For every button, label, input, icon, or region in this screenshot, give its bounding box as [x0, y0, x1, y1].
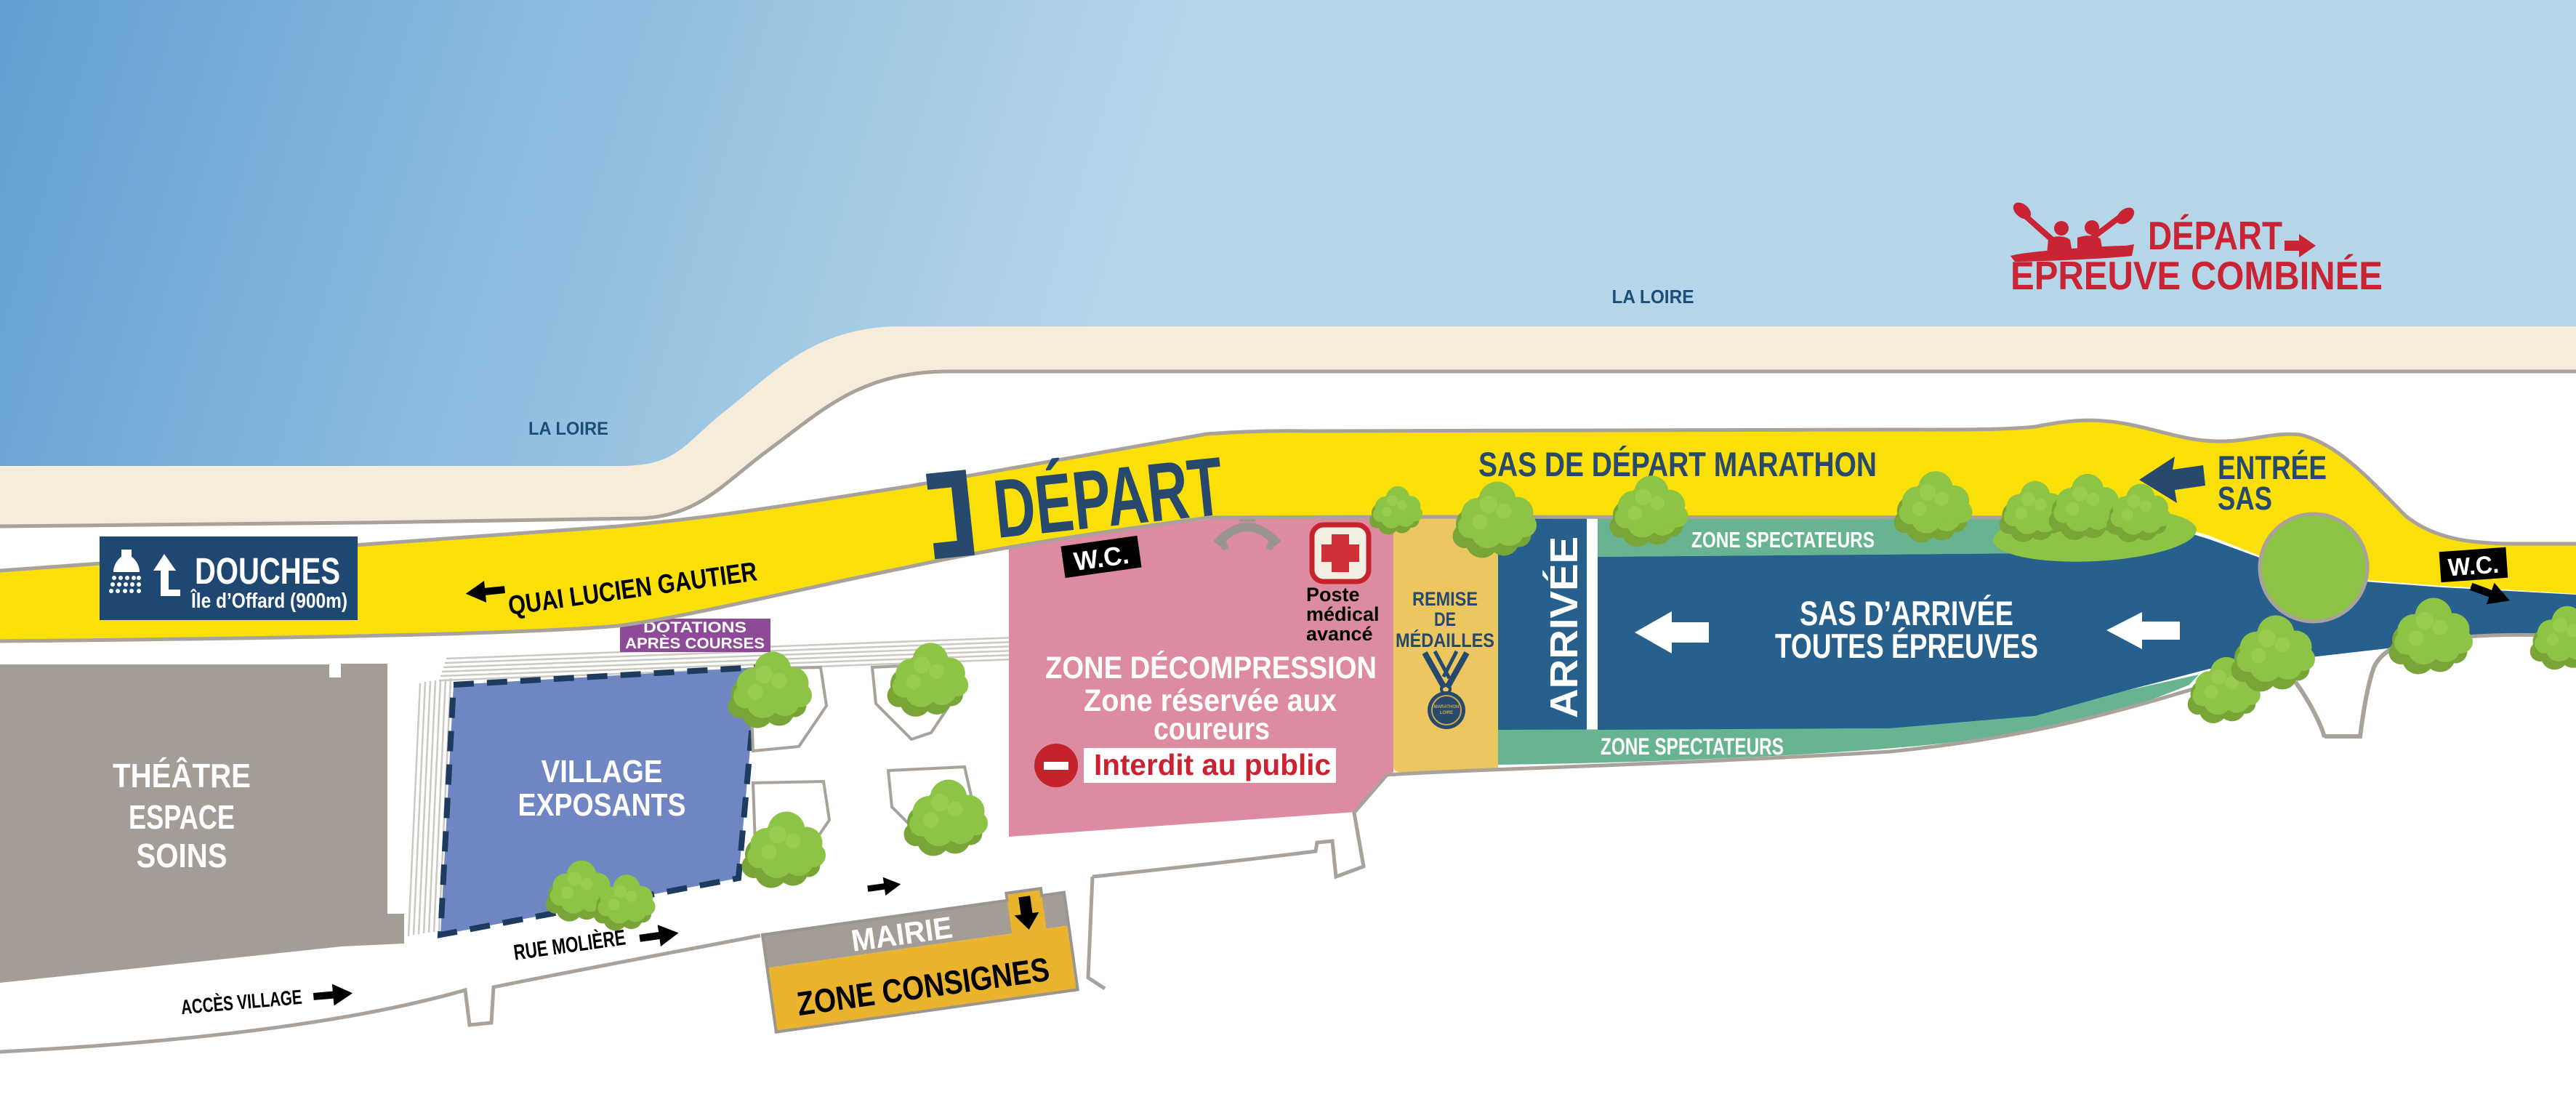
svg-text:Interdit au public: Interdit au public: [1094, 748, 1331, 781]
svg-text:MÉDAILLES: MÉDAILLES: [1396, 629, 1494, 651]
svg-text:VILLAGE: VILLAGE: [542, 754, 663, 789]
svg-text:APRÈS COURSES: APRÈS COURSES: [625, 635, 765, 652]
svg-text:médical: médical: [1306, 603, 1380, 625]
svg-text:MARATHON: MARATHON: [1434, 705, 1460, 709]
svg-text:Île d’Offard (900m): Île d’Offard (900m): [190, 588, 347, 613]
svg-text:LA LOIRE: LA LOIRE: [528, 419, 608, 439]
svg-text:coureurs: coureurs: [1154, 712, 1270, 747]
svg-text:TOUTES ÉPREUVES: TOUTES ÉPREUVES: [1775, 627, 2038, 665]
svg-text:ZONE DÉCOMPRESSION: ZONE DÉCOMPRESSION: [1045, 651, 1377, 685]
svg-text:Poste: Poste: [1306, 584, 1360, 606]
svg-text:ÉPREUVE COMBINÉE: ÉPREUVE COMBINÉE: [2011, 253, 2383, 298]
svg-text:ESPACE: ESPACE: [129, 798, 235, 836]
svg-text:DOTATIONS: DOTATIONS: [643, 619, 746, 636]
svg-text:EXPOSANTS: EXPOSANTS: [518, 787, 686, 823]
svg-text:REMISE: REMISE: [1412, 588, 1478, 610]
svg-text:ARRIVÉE: ARRIVÉE: [1542, 536, 1586, 718]
svg-text:DE: DE: [1434, 608, 1456, 630]
svg-text:SOINS: SOINS: [137, 837, 228, 874]
svg-text:ZONE SPECTATEURS: ZONE SPECTATEURS: [1691, 527, 1875, 552]
svg-text:ZONE SPECTATEURS: ZONE SPECTATEURS: [1601, 733, 1784, 760]
svg-text:LOIRE: LOIRE: [1440, 711, 1453, 715]
svg-text:W.C.: W.C.: [2447, 551, 2500, 582]
svg-text:THÉÂTRE: THÉÂTRE: [113, 757, 251, 795]
svg-text:DOUCHES: DOUCHES: [195, 550, 340, 592]
svg-text:SAS: SAS: [2218, 480, 2272, 517]
svg-text:DÉPART: DÉPART: [2148, 213, 2282, 258]
svg-text:avancé: avancé: [1306, 623, 1373, 645]
svg-text:SAS DE DÉPART MARATHON: SAS DE DÉPART MARATHON: [1478, 445, 1877, 483]
svg-text:LA LOIRE: LA LOIRE: [1612, 286, 1694, 307]
